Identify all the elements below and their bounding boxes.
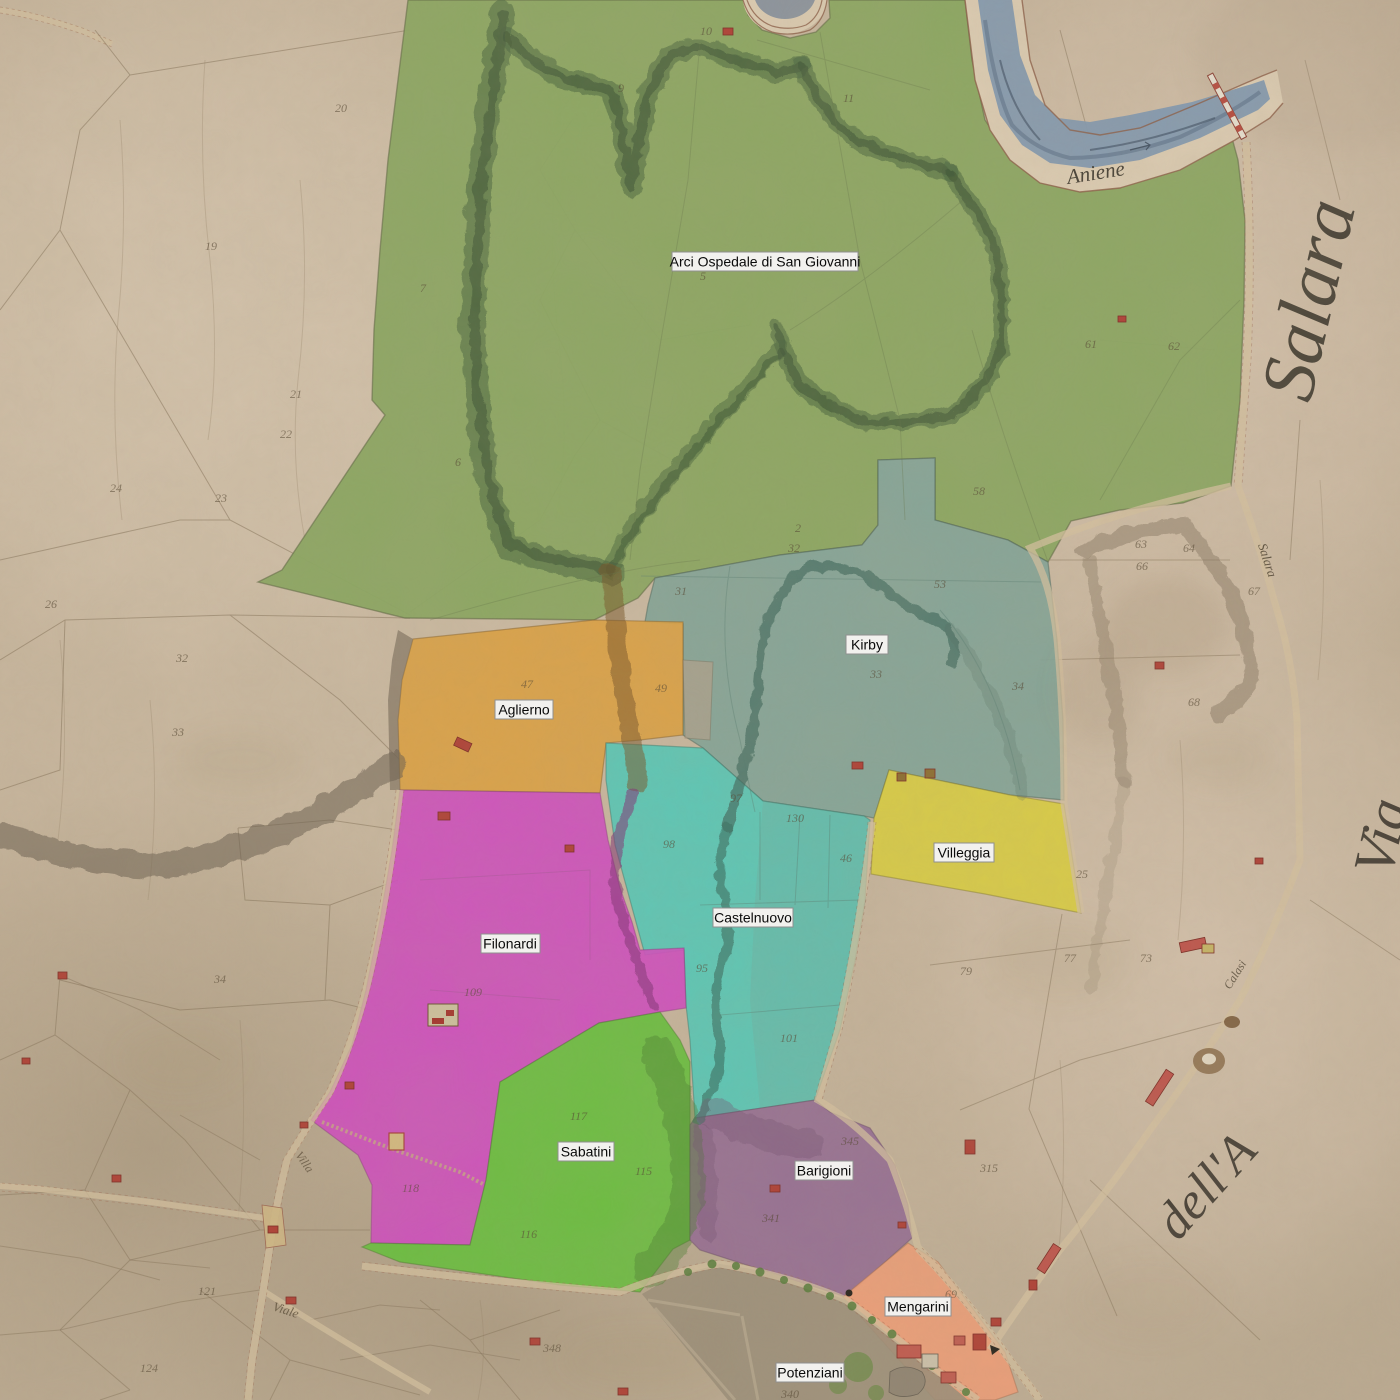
- svg-text:Villeggia: Villeggia: [938, 845, 991, 861]
- svg-text:Arci Ospedale di San Giovanni: Arci Ospedale di San Giovanni: [670, 254, 861, 270]
- svg-text:Barigioni: Barigioni: [797, 1163, 851, 1179]
- svg-text:Filonardi: Filonardi: [483, 936, 537, 952]
- svg-text:Kirby: Kirby: [851, 637, 883, 653]
- svg-text:Mengarini: Mengarini: [887, 1299, 948, 1315]
- svg-text:Castelnuovo: Castelnuovo: [714, 910, 792, 926]
- svg-text:Sabatini: Sabatini: [561, 1144, 612, 1160]
- svg-text:Aglierno: Aglierno: [498, 702, 550, 718]
- svg-text:Potenziani: Potenziani: [777, 1365, 842, 1381]
